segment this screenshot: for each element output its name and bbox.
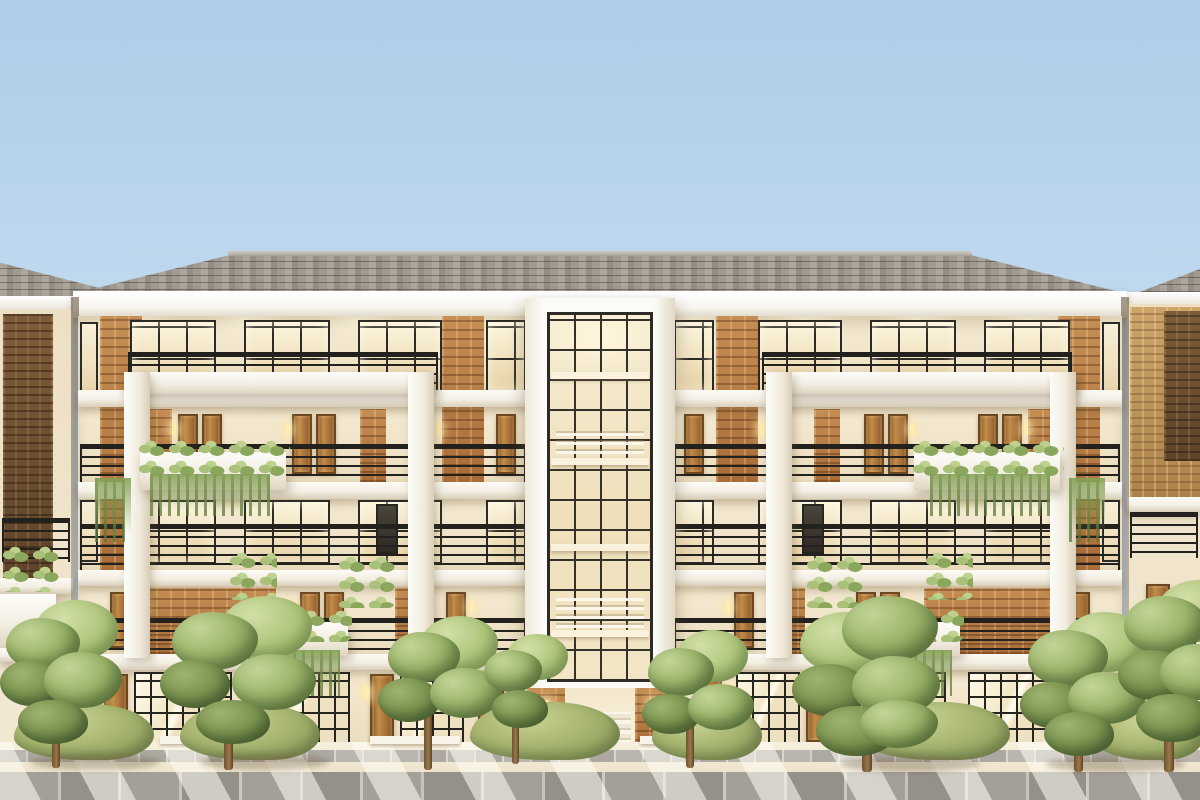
wall-sconce [1024,424,1028,435]
tree-canopy [18,700,88,744]
residential-building-render [0,0,1200,800]
window [486,320,526,392]
window [674,320,714,392]
tree-shadow [200,754,330,770]
tree-canopy [1136,694,1200,742]
tree-canopy [492,690,548,728]
white-frame-leg [408,372,434,658]
planter-foliage [910,440,1064,476]
planter-curb [370,736,460,744]
white-frame-band [124,372,434,394]
tree-shadow [30,754,160,770]
stair-landing [551,458,649,465]
wall-sconce [760,424,764,435]
wall-sconce [286,424,290,435]
wall-sconce [436,424,440,435]
roof-ridge-cap [228,251,972,256]
wall-sconce [364,686,369,699]
wall-sconce [172,424,176,435]
tree-canopy [196,700,270,744]
window [80,322,98,392]
planter-foliage [804,556,864,608]
white-frame-leg [766,372,792,658]
adjacent-floor-slab [1127,497,1200,512]
stair-landing [551,544,649,551]
tree-canopy [1044,712,1114,756]
wall-sconce [726,602,730,613]
adjacent-balcony-railing [1130,512,1198,558]
adjacent-brick-pier [1164,311,1200,461]
planter-foliage [923,552,973,600]
planter-foliage [336,556,396,608]
tree-shadow [840,756,980,772]
stair-treads [556,598,644,628]
white-frame-band [766,372,1076,394]
stair-landing [551,630,649,637]
wall-sconce [910,424,914,435]
planter-foliage [136,440,290,476]
adjacent-planter-foliage [0,546,60,592]
stair-treads [556,428,644,454]
hanging-vine [1069,478,1105,542]
hanging-vine [95,478,131,542]
window [1102,322,1120,392]
wall-sconce [470,602,474,613]
hanging-vine [930,474,1050,516]
planter-foliage [227,552,277,600]
stair-landing [551,372,649,379]
hanging-vine [150,474,270,516]
